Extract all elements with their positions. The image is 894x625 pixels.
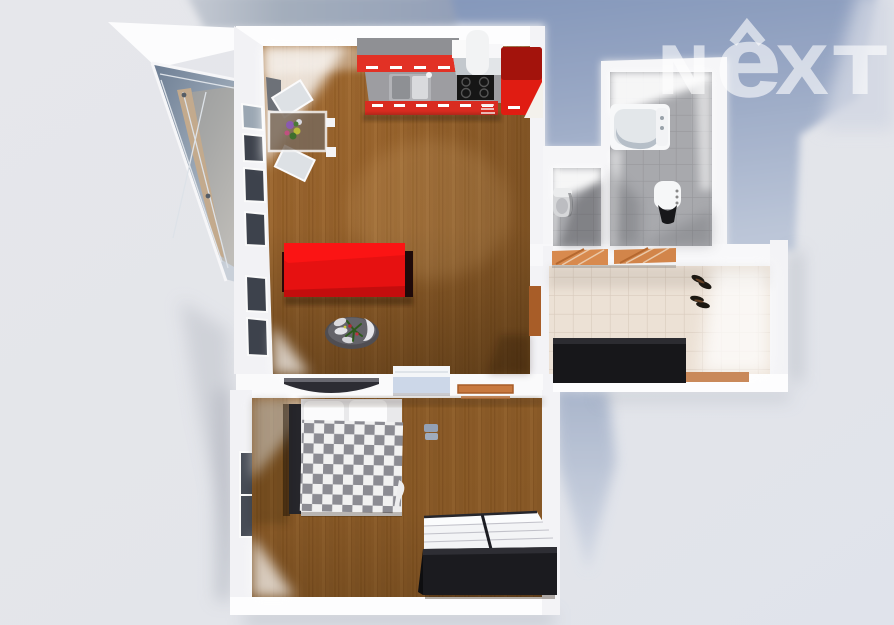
svg-text:X: X [777,32,827,108]
svg-text:N: N [659,32,708,108]
svg-text:T: T [834,32,886,108]
